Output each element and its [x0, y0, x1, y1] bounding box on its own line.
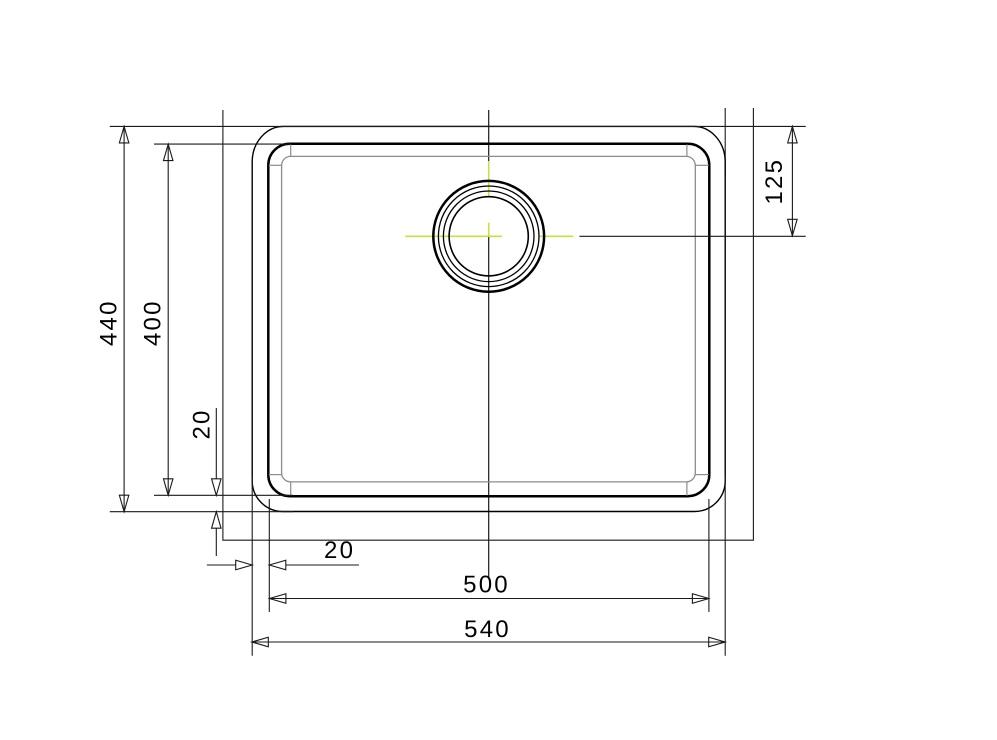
svg-text:440: 440	[95, 299, 122, 346]
svg-text:500: 500	[463, 571, 510, 598]
svg-text:20: 20	[324, 537, 355, 564]
svg-text:20: 20	[189, 408, 216, 439]
svg-text:125: 125	[761, 158, 788, 205]
svg-text:400: 400	[140, 299, 167, 346]
svg-text:540: 540	[464, 616, 511, 643]
